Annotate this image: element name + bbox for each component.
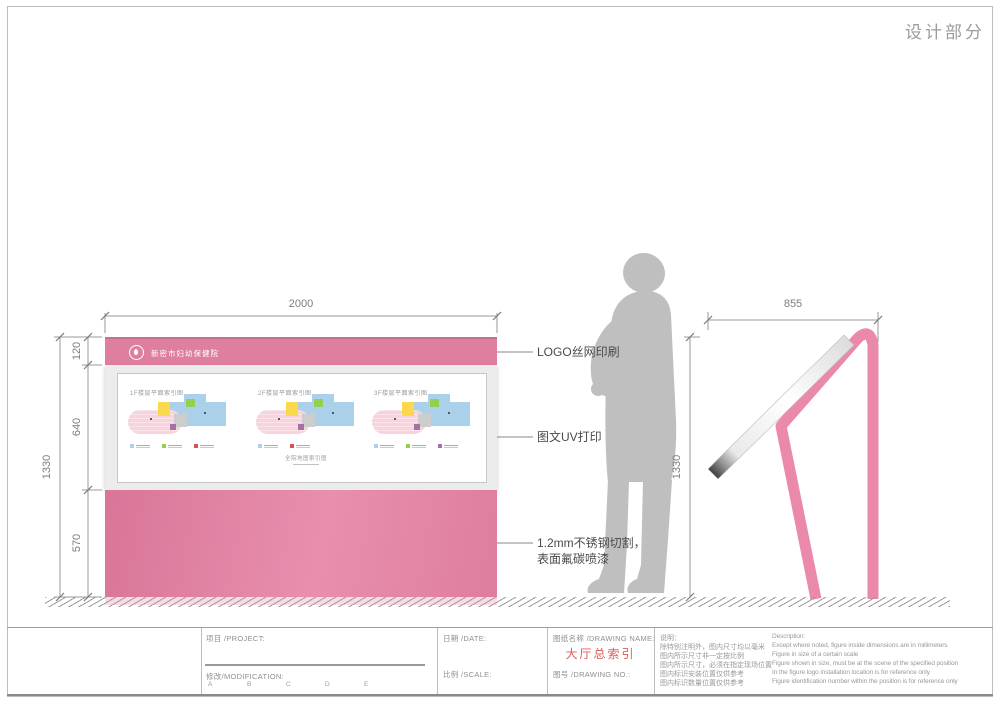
sign-panel-frame: 1F楼层平面索引图 2F楼层平面索引图 [105,365,497,490]
notes-en-title: Description: [772,633,805,640]
modification-label: 修改/MODIFICATION: [206,671,284,682]
floor-map-legend [374,444,458,448]
design-drawing-page: 设计部分 [0,0,1000,706]
floor-map-legend [258,444,310,448]
revision-mark-e: E [364,681,368,688]
annotation-material: 1.2mm不锈钢切割， 表面氟碳喷漆 [537,535,646,567]
notes-en-line: In the figure logo installation location… [772,669,930,676]
drawing-no-label: 图号 /DRAWING NO.: [553,669,630,680]
dim-side-height-1330: 1330 [671,455,683,479]
dim-depth-855: 855 [784,298,802,310]
floor-map-graphic [128,398,230,438]
annotation-material-line2: 表面氟碳喷漆 [537,551,646,567]
floor-map-title: 3F楼层平面索引图 [374,388,428,397]
project-label: 项目 /PROJECT: [206,633,265,644]
floor-map-2: 2F楼层平面索引图 [254,388,362,460]
scale-label: 比例 /SCALE: [443,669,492,680]
sign-panel: 1F楼层平面索引图 2F楼层平面索引图 [117,373,487,483]
sign-base [105,490,497,597]
hospital-logo-text: 新密市妇幼保健院 [151,339,219,367]
title-block-divider [437,628,438,694]
floor-map-title: 2F楼层平面索引图 [258,388,312,397]
sign-header-strip: 新密市妇幼保健院 [105,337,497,365]
floor-map-title: 1F楼层平面索引图 [130,388,184,397]
annotation-logo-print: LOGO丝网印刷 [537,344,620,360]
dim-base-570: 570 [71,534,83,552]
revision-mark-d: D [325,681,330,688]
modification-divider [205,664,425,666]
annotation-uv-print: 图文UV打印 [537,429,602,445]
floor-map-3: 3F楼层平面索引图 [370,388,478,460]
dim-total-1330: 1330 [41,455,53,479]
notes-en-line: Except where noted, figure inside dimens… [772,642,947,649]
date-label: 日期 /DATE: [443,633,486,644]
revision-mark-a: A [208,681,212,688]
title-block: 项目 /PROJECT: 修改/MODIFICATION: A B C D E … [7,627,993,696]
page-title: 设计部分 [880,18,985,43]
annotation-material-line1: 1.2mm不锈钢切割， [537,535,646,551]
title-block-divider [201,628,202,694]
drawing-name-value: 大厅总索引 [547,645,654,662]
notes-en-line: Figure shown in size, must be at the sce… [772,660,958,667]
dim-panel-640: 640 [71,418,83,436]
floor-map-1: 1F楼层平面索引图 [126,388,234,460]
drawing-name-label: 图纸名称 /DRAWING NAME: [553,633,655,644]
floor-map-graphic [372,398,474,438]
revision-mark-c: C [286,681,291,688]
notes-en-line: Figure identification number within the … [772,678,958,685]
panel-caption: 全院地图索引图 [261,454,351,465]
revision-mark-b: B [247,681,251,688]
panel-caption-text: 全院地图索引图 [285,456,327,462]
dim-header-120: 120 [71,342,83,360]
notes-en-line: Figure in size of a certain scale [772,651,858,658]
floor-map-legend [130,444,214,448]
floor-map-graphic [256,398,358,438]
hospital-logo-icon [129,345,144,360]
notes-cn-line: 图内标识数量位置仅供参考 [660,678,744,688]
ground-reflection [105,597,497,605]
dim-width-2000: 2000 [289,298,313,310]
